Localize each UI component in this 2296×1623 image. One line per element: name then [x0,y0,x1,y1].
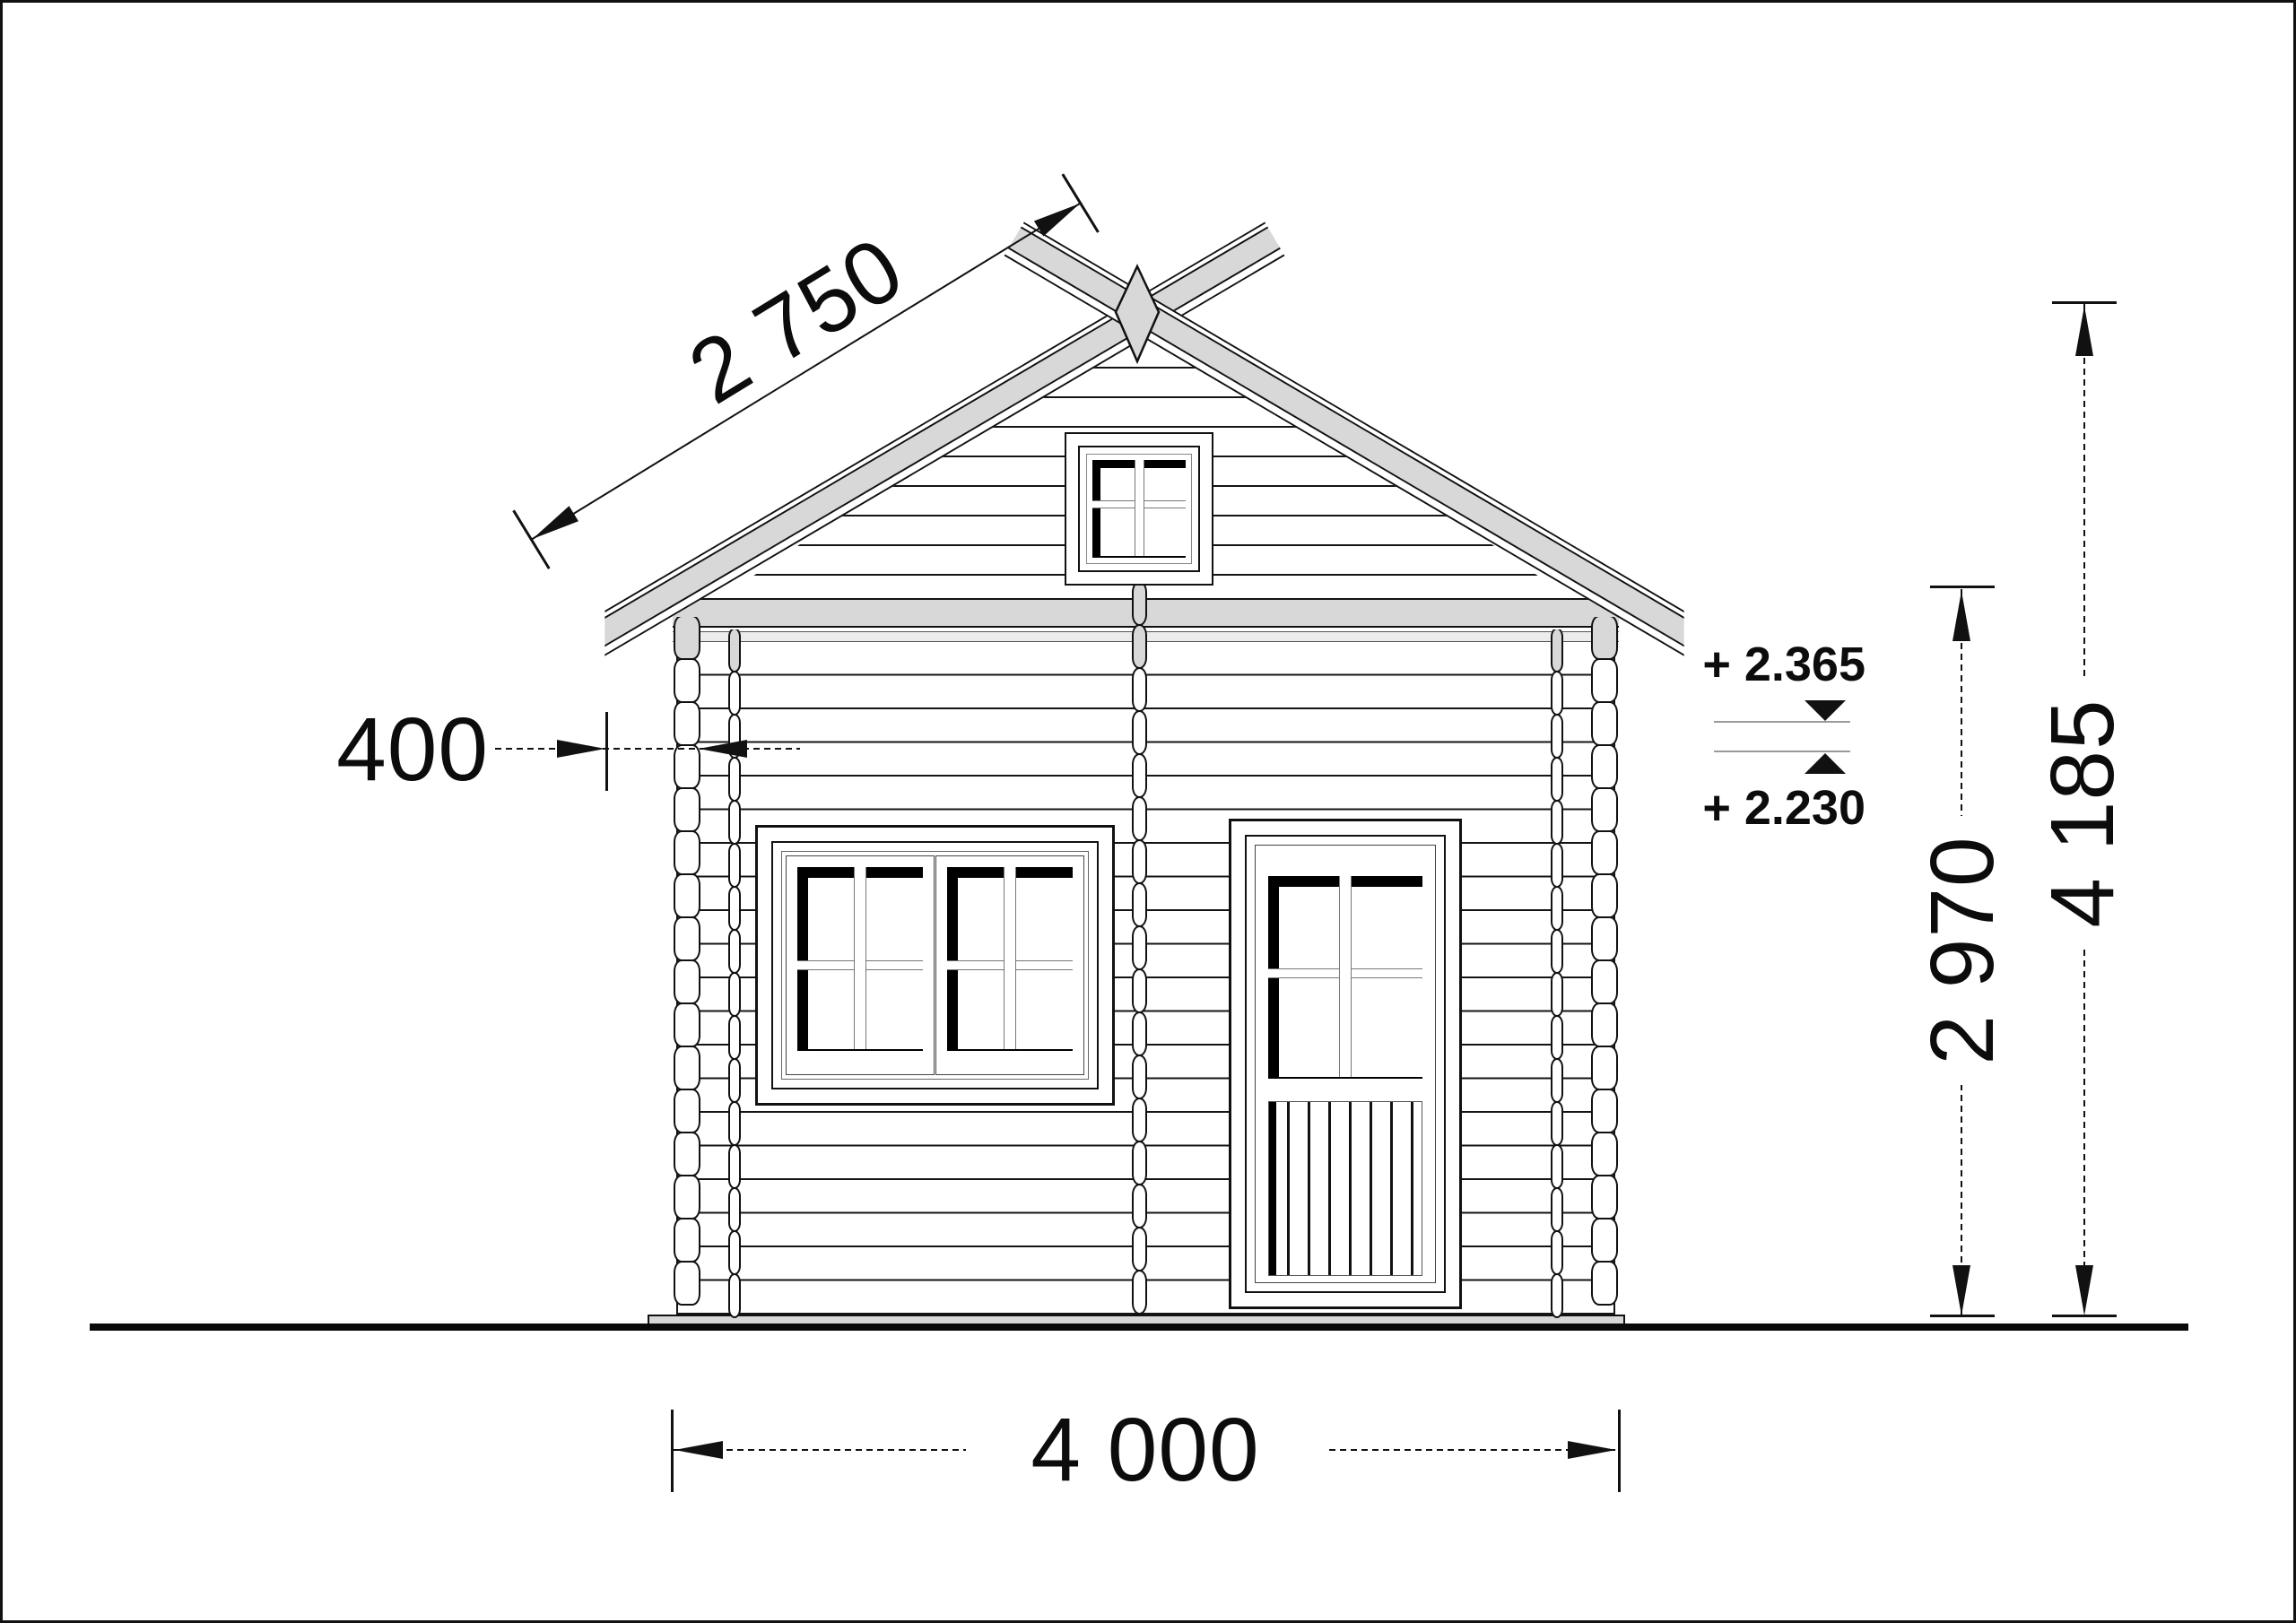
glass-bottom-line [797,1049,923,1052]
door-glass [1268,876,1422,1079]
center-log-pins [1132,583,1147,1318]
ground-line [90,1324,2188,1331]
elevation-marker-triangle-up [1805,753,1846,774]
dimension-arrow [557,740,605,758]
glass-bottom-line [947,1049,1073,1052]
casement-left-glass [797,867,923,1051]
entrance-door [1229,819,1462,1309]
glass-shadow-left [947,867,958,1051]
elevation-marker-line [1714,721,1850,723]
corner-logs-left-inner [728,629,741,1318]
elevation-marker-triangle-down [1805,700,1846,721]
glass-bottom-line [1092,556,1186,559]
dimension-arrow [1952,591,1970,641]
dimension-arrow [2075,306,2093,356]
elevation-marker-line [1714,751,1850,752]
ridge-finial [1114,264,1161,364]
dimension-tick [1618,1410,1621,1492]
corner-logs-right-inner [1551,629,1563,1318]
glass-shadow-left [1092,460,1100,558]
casement-right-glass [947,867,1073,1051]
dimension-label-overhang: 400 [251,705,489,794]
elevation-marker-lower-label: + 2.230 [1641,782,1865,834]
main-window [755,825,1115,1106]
gable-window [1065,432,1213,586]
door-slat-panel [1268,1101,1422,1276]
muntin-vertical [854,867,866,1051]
casement-right [935,855,1084,1075]
slat-shadow-left [1269,1102,1276,1275]
glass-shadow-left [797,867,808,1051]
main-window-sash-area [781,851,1089,1080]
dimension-tick [605,712,608,791]
corner-logs-left-outer [674,617,700,1318]
elevation-drawing: 2 750 400 4 000 2 970 4 185 + 2.365 + 2.… [0,0,2296,1623]
dimension-arrow [1952,1265,1970,1315]
dimension-tick [2052,301,2117,304]
door-leaf [1255,845,1436,1283]
dimension-arrow [1568,1441,1616,1459]
dimension-line-overhang [495,748,800,750]
dimension-arrow [699,740,747,758]
gable-window-glass [1092,460,1186,558]
dimension-arrow [674,1441,723,1459]
dimension-tick [671,1410,674,1492]
muntin-vertical [1004,867,1016,1051]
dimension-label-wall-height: 2 970 [1918,816,2007,1085]
dimension-tick [1930,586,1995,588]
glass-bottom-line [1268,1077,1422,1080]
muntin-vertical [1135,460,1144,558]
elevation-marker-upper-label: + 2.365 [1641,638,1865,690]
muntin-vertical [1339,876,1352,1079]
dimension-label-width: 4 000 [966,1405,1325,1495]
corner-logs-right-outer [1591,617,1618,1318]
casement-left [786,855,935,1075]
dimension-label-total-height: 4 185 [2038,679,2127,948]
dimension-arrow [2075,1265,2093,1315]
